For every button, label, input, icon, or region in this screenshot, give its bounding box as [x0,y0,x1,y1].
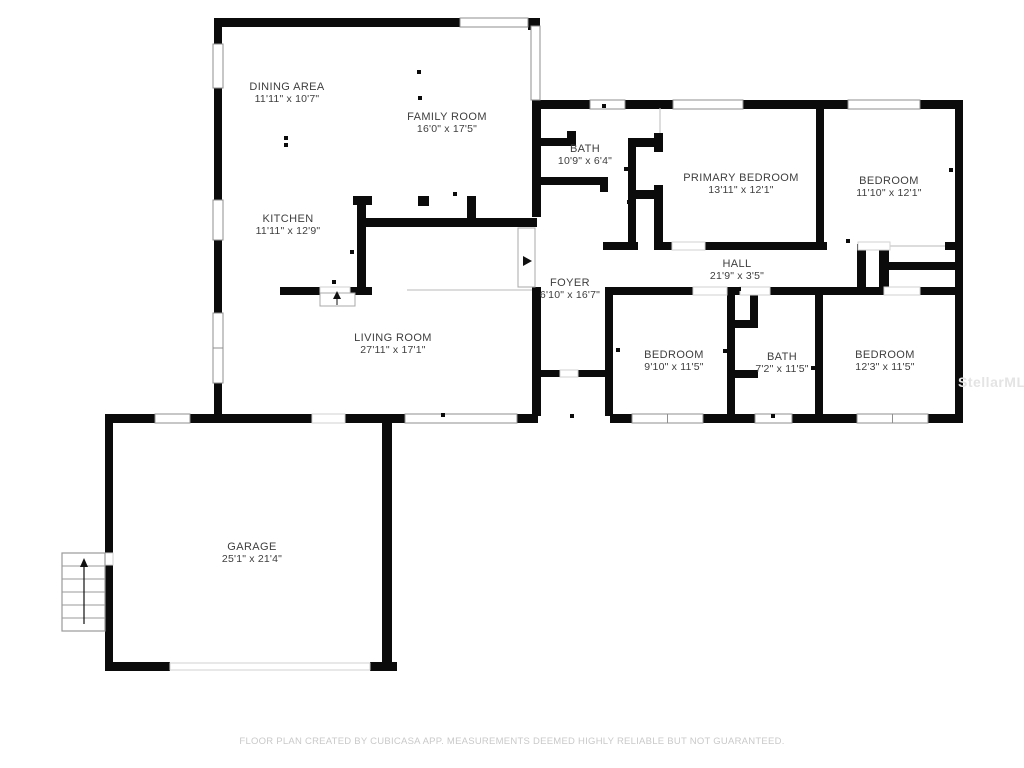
window [460,18,528,27]
wall [353,196,372,205]
wall [532,100,590,109]
gap-frame [672,242,705,250]
dimension-tick [811,366,815,370]
windows-layer [105,18,928,670]
wall [727,287,735,414]
room-dimensions: 21'9" x 3'5" [710,270,764,282]
dimension-tick [951,265,955,269]
wall [345,414,405,423]
ticks-layer [249,18,955,422]
room-dimensions: 11'11" x 12'9" [256,225,321,237]
window [213,313,223,383]
wall [654,133,663,152]
wall [770,287,884,295]
doors-layer [320,228,535,306]
dimension-tick [624,167,628,171]
window [590,100,625,109]
window [673,100,743,109]
wall [105,414,113,553]
dimension-tick [441,413,445,417]
room-label-bedroom-ne: BEDROOM11'10" x 12'1" [856,175,922,199]
door-opening [858,242,890,250]
wall [541,370,560,377]
wall [879,244,889,292]
wall [920,287,963,295]
room-label-kitchen: KITCHEN11'11" x 12'9" [256,213,321,237]
wall [654,185,663,247]
dimension-tick [284,143,288,147]
room-name: HALL [722,258,751,270]
dimension-tick [249,418,253,422]
window [848,100,920,109]
room-label-garage: GARAGE25'1" x 21'4" [222,541,282,565]
room-dimensions: 16'0" x 17'5" [417,123,477,135]
dimension-tick [771,414,775,418]
wall [815,287,823,414]
dimension-tick [627,200,631,204]
wall [517,414,538,423]
room-name: BEDROOM [855,349,915,361]
room-label-foyer: FOYER6'10" x 16'7" [540,277,600,301]
door-leaf [518,228,535,287]
dimension-tick [332,280,336,284]
room-name: DINING AREA [249,81,325,93]
wall [857,244,866,292]
gap-frame [740,287,770,295]
window-frame [848,100,920,109]
wall [600,185,608,192]
dimension-tick [350,250,354,254]
wall [728,370,758,378]
wall [610,414,632,423]
wall [532,287,541,416]
room-label-dining-area: DINING AREA11'11" x 10'7" [249,81,325,105]
room-label-bedroom-s1: BEDROOM9'10" x 11'5" [644,349,704,373]
wall [945,242,963,250]
room-name: BEDROOM [859,175,919,187]
door-opening [693,287,727,295]
window-frame [673,100,743,109]
window [213,200,223,240]
room-label-family-room: FAMILY ROOM16'0" x 17'5" [407,111,487,135]
dimension-tick [723,349,727,353]
room-label-living-room: LIVING ROOM27'11" x 17'1" [354,332,432,356]
dimension-tick [844,414,848,418]
dimension-tick [281,18,285,22]
dimension-tick [570,414,574,418]
dimension-tick [453,192,457,196]
room-name: GARAGE [227,541,276,553]
window [155,414,190,423]
room-label-bedroom-se: BEDROOM12'3" x 11'5" [855,349,915,373]
gap-frame [858,242,890,250]
room-name: BEDROOM [644,349,704,361]
window-frame [590,100,625,109]
room-dimensions: 7'2" x 11'5" [755,363,808,375]
wall [705,242,827,250]
wall [105,662,170,671]
room-name: FOYER [550,277,590,289]
gap-frame [693,287,727,295]
wall [654,242,672,250]
window-frame [213,44,223,88]
door-opening [170,663,370,670]
room-name: BATH [767,351,797,363]
room-dimensions: 9'10" x 11'5" [644,361,703,373]
stellar-mls-watermark: StellarMLS [958,374,1024,390]
room-name: KITCHEN [262,213,313,225]
window [857,414,928,423]
window-frame [531,26,540,100]
window-frame [460,18,528,27]
wall [105,565,113,671]
window-frame [155,414,190,423]
room-dimensions: 13'11" x 12'1" [708,184,774,196]
dimension-tick [284,136,288,140]
room-label-primary-bedroom: PRIMARY BEDROOM13'11" x 12'1" [683,172,799,196]
room-name: BATH [570,143,600,155]
room-label-bath-upper: BATH10'9" x 6'4" [558,143,612,167]
wall [214,88,222,200]
wall [357,196,366,294]
door-opening [312,414,345,423]
gap-frame [170,663,370,670]
room-dimensions: 11'10" x 12'1" [856,187,922,199]
wall [743,100,848,109]
wall [467,196,476,220]
floor-plan: DINING AREA11'11" x 10'7"FAMILY ROOM16'0… [0,0,1024,768]
room-name: PRIMARY BEDROOM [683,172,799,184]
wall [280,287,320,295]
wall [214,383,222,416]
dimension-tick [602,104,606,108]
window-frame [213,200,223,240]
window [632,414,703,423]
gap-frame [560,370,578,377]
room-dimensions: 6'10" x 16'7" [540,289,600,301]
wall [888,262,955,270]
wall [382,414,392,671]
wall [214,18,460,27]
wall [214,240,222,313]
window [405,414,517,423]
window [213,44,223,88]
wall [625,100,673,109]
wall [603,242,638,250]
room-dimensions: 10'9" x 6'4" [558,155,612,167]
wall [703,414,755,423]
dimension-tick [846,239,850,243]
room-dimensions: 25'1" x 21'4" [222,553,282,565]
wall [605,287,613,416]
door-opening [560,370,578,377]
room-label-bath-lower: BATH7'2" x 11'5" [755,351,808,375]
dimension-tick [417,70,421,74]
walls-layer [105,18,963,671]
room-dimensions: 11'11" x 10'7" [255,93,320,105]
dimension-tick [949,168,953,172]
wall [728,320,758,328]
dimension-tick [737,287,741,291]
dimension-tick [418,96,422,100]
wall [418,196,429,206]
dimension-tick [818,169,822,173]
door-opening [884,287,920,295]
gap-frame [312,414,345,423]
stairs [62,553,105,631]
door-opening [740,287,770,295]
room-name: LIVING ROOM [354,332,432,344]
door-opening [672,242,705,250]
room-dimensions: 12'3" x 11'5" [855,361,914,373]
floor-plan-canvas: DINING AREA11'11" x 10'7"FAMILY ROOM16'0… [0,0,1024,768]
room-dimensions: 27'11" x 17'1" [360,344,426,356]
window-frame [405,414,517,423]
gap-frame [884,287,920,295]
wall [532,100,541,217]
wall [578,370,605,377]
wall [816,108,824,250]
wall [532,177,608,185]
room-name: FAMILY ROOM [407,111,487,123]
wall [613,287,693,295]
room-label-hall: HALL21'9" x 3'5" [710,258,764,282]
gap-frame [105,553,113,565]
window [531,26,540,100]
footer-disclaimer: FLOOR PLAN CREATED BY CUBICASA APP. MEAS… [0,736,1024,747]
dimension-tick [616,348,620,352]
door-opening [105,553,113,565]
wall [362,218,537,227]
